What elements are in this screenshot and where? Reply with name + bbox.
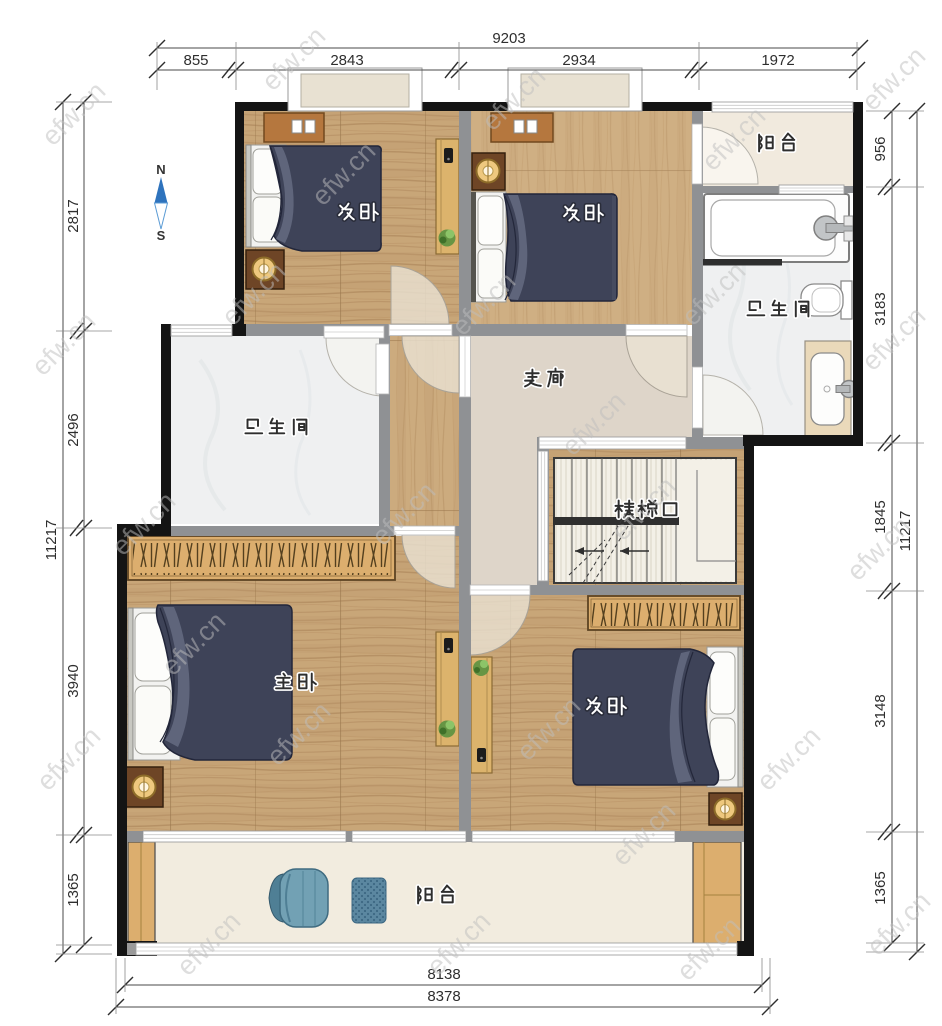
svg-text:S: S [157, 228, 166, 243]
svg-text:855: 855 [183, 52, 208, 69]
svg-text:11217: 11217 [43, 520, 60, 561]
svg-text:2934: 2934 [562, 52, 595, 69]
svg-text:1365: 1365 [872, 871, 889, 904]
svg-text:N: N [156, 162, 165, 177]
svg-text:1972: 1972 [761, 52, 794, 69]
svg-text:2817: 2817 [65, 199, 82, 232]
svg-text:9203: 9203 [492, 30, 525, 47]
svg-text:956: 956 [872, 136, 889, 161]
svg-text:2496: 2496 [65, 413, 82, 446]
svg-text:2843: 2843 [330, 52, 363, 69]
svg-text:8378: 8378 [427, 988, 460, 1005]
svg-text:1365: 1365 [65, 873, 82, 906]
svg-text:3148: 3148 [872, 694, 889, 727]
svg-text:3940: 3940 [65, 664, 82, 697]
svg-text:3183: 3183 [872, 292, 889, 325]
